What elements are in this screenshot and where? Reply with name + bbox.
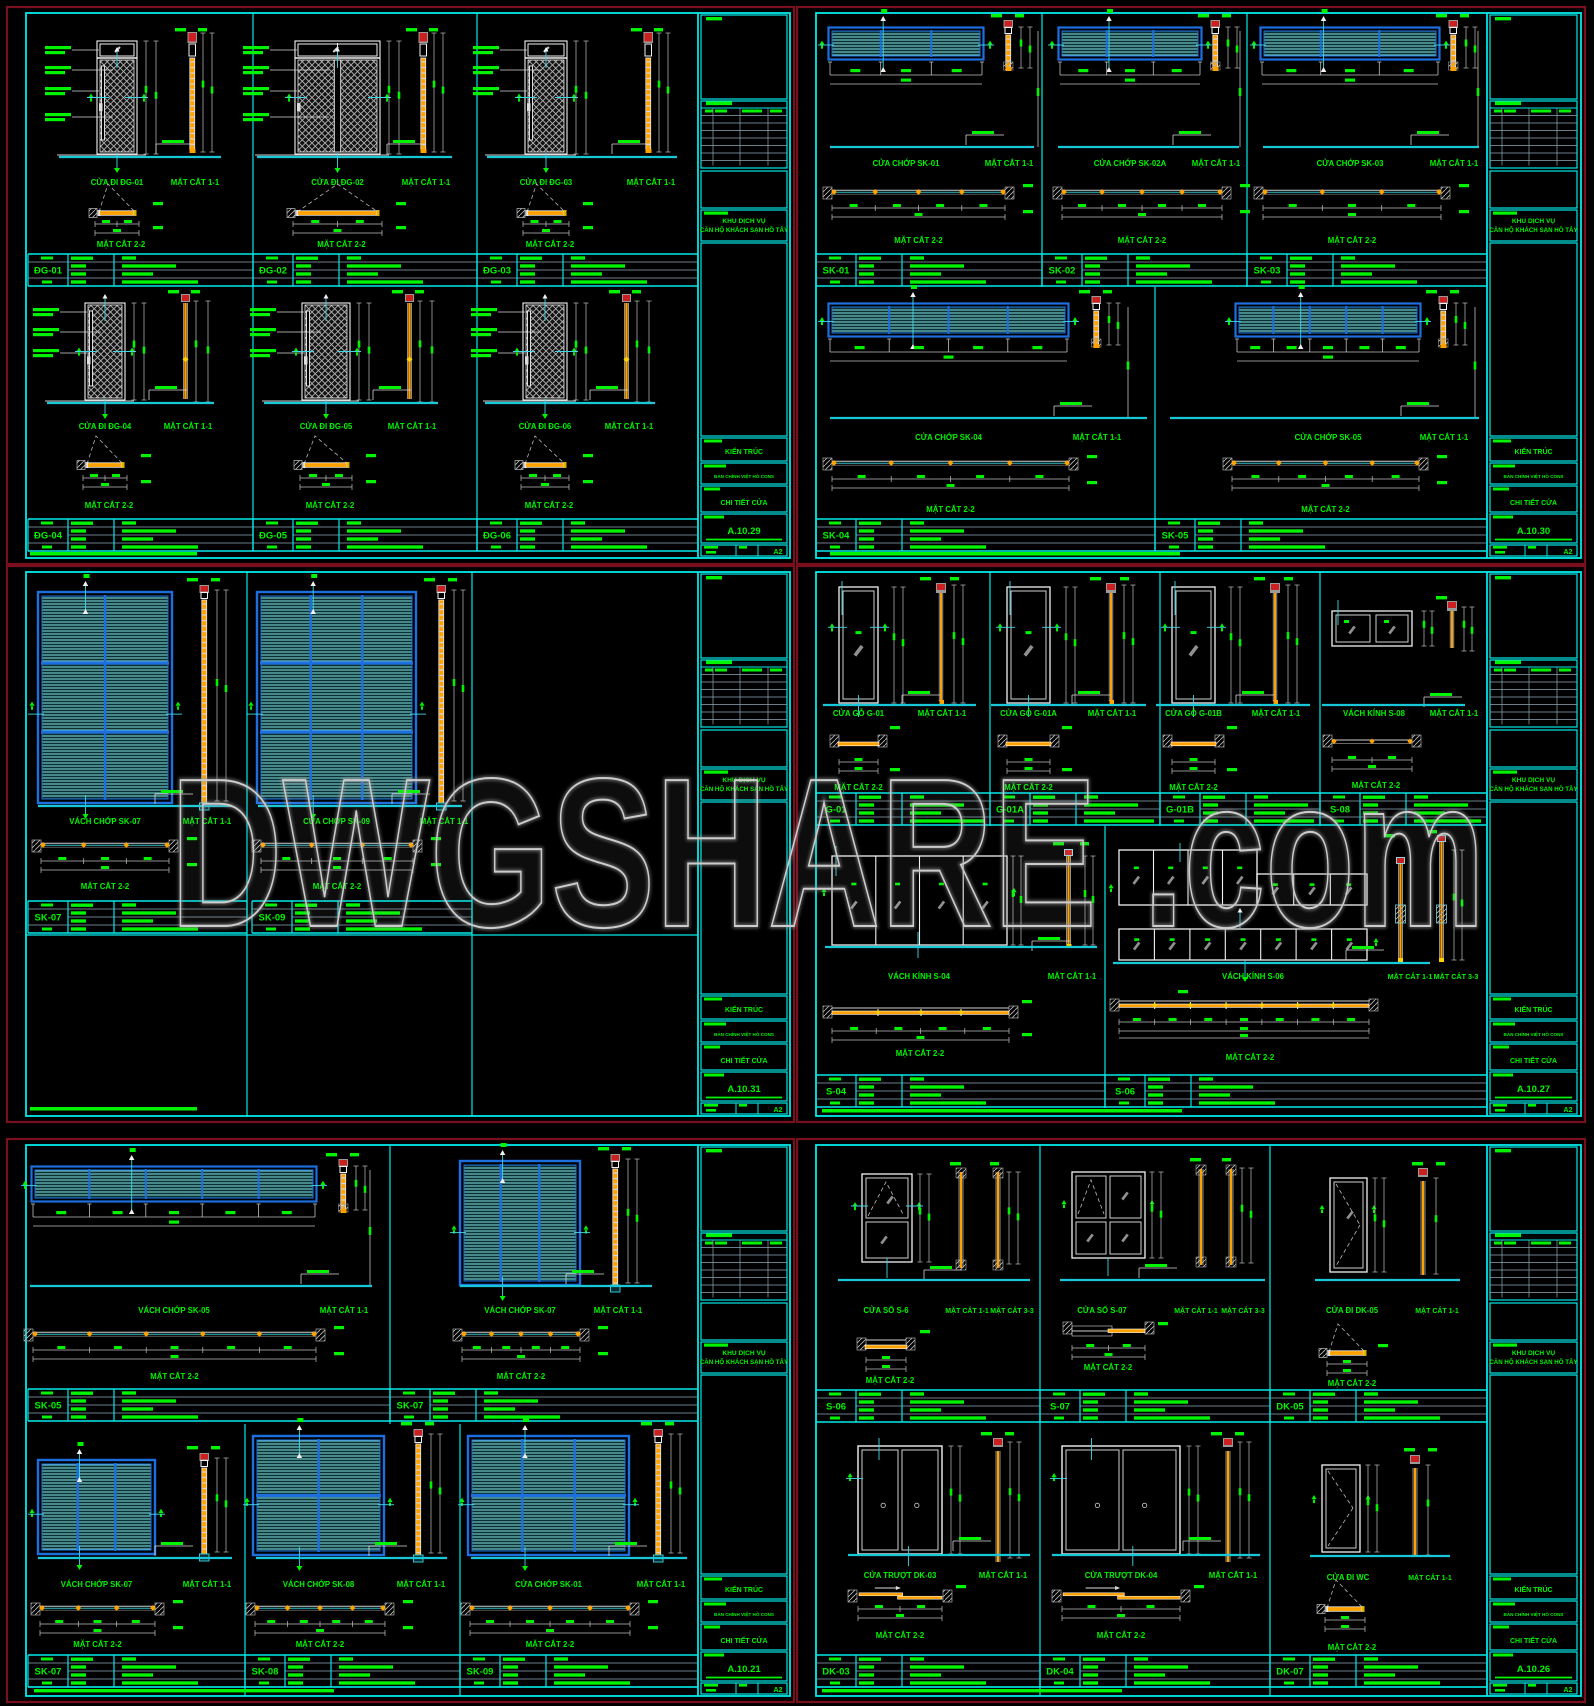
- svg-text:MẶT CẮT 3-3: MẶT CẮT 3-3: [990, 1306, 1034, 1315]
- svg-text:A.10.26: A.10.26: [1517, 1664, 1550, 1675]
- svg-text:A.10.27: A.10.27: [1517, 1084, 1550, 1095]
- svg-text:CĂN HỘ KHÁCH SẠN HỒ TÂY: CĂN HỘ KHÁCH SẠN HỒ TÂY: [1489, 226, 1578, 234]
- svg-text:CỬA ĐI WC: CỬA ĐI WC: [1327, 1573, 1370, 1582]
- svg-text:BẢN CHÍNH VIỆT HỒ CONS: BẢN CHÍNH VIỆT HỒ CONS: [1504, 472, 1564, 479]
- svg-text:MẶT CẮT 1-1: MẶT CẮT 1-1: [1430, 709, 1479, 718]
- svg-text:VÁCH KÍNH S-08: VÁCH KÍNH S-08: [1343, 709, 1406, 718]
- svg-text:DK-05: DK-05: [1276, 1401, 1304, 1412]
- svg-text:MẶT CẮT 1-1: MẶT CẮT 1-1: [1209, 1571, 1258, 1580]
- svg-text:MẶT CẮT 1-1: MẶT CẮT 1-1: [402, 178, 451, 187]
- svg-text:A2: A2: [1564, 1107, 1573, 1114]
- svg-text:MẶT CẮT 3-3: MẶT CẮT 3-3: [1434, 972, 1479, 981]
- svg-text:S-06: S-06: [826, 1401, 846, 1412]
- svg-text:ĐG-05: ĐG-05: [259, 530, 288, 541]
- svg-text:SK-08: SK-08: [252, 1666, 279, 1677]
- svg-text:CỬA GỖ G-01: CỬA GỖ G-01: [833, 709, 885, 718]
- svg-text:MẶT CẮT 2-2: MẶT CẮT 2-2: [81, 882, 130, 891]
- svg-text:SK-09: SK-09: [467, 1666, 494, 1677]
- svg-text:MẶT CẮT 2-2: MẶT CẮT 2-2: [85, 501, 134, 510]
- svg-text:MẶT CẮT 2-2: MẶT CẮT 2-2: [1097, 1631, 1146, 1640]
- svg-text:DK-04: DK-04: [1046, 1666, 1074, 1677]
- svg-text:A2: A2: [774, 1107, 783, 1114]
- svg-text:MẶT CẮT 1-1: MẶT CẮT 1-1: [945, 1306, 989, 1315]
- svg-text:A2: A2: [1564, 1687, 1573, 1694]
- svg-text:VÁCH CHỚP SK-07: VÁCH CHỚP SK-07: [484, 1306, 556, 1315]
- svg-text:MẶT CẮT 1-1: MẶT CẮT 1-1: [1408, 1573, 1452, 1582]
- svg-text:KHU DỊCH VỤ: KHU DỊCH VỤ: [722, 1350, 765, 1357]
- svg-text:ĐG-02: ĐG-02: [259, 265, 287, 276]
- svg-text:A.10.31: A.10.31: [727, 1084, 761, 1095]
- svg-text:MẶT CẮT 2-2: MẶT CẮT 2-2: [150, 1372, 199, 1381]
- svg-text:MẶT CẮT 2-2: MẶT CẮT 2-2: [1328, 1379, 1377, 1388]
- svg-text:S-07: S-07: [1050, 1401, 1070, 1412]
- svg-text:CỬA ĐI ĐG-03: CỬA ĐI ĐG-03: [520, 178, 573, 187]
- svg-text:CỬA ĐI DK-05: CỬA ĐI DK-05: [1326, 1306, 1379, 1315]
- svg-text:DK-07: DK-07: [1276, 1666, 1303, 1677]
- svg-text:MẶT CẮT 1-1: MẶT CẮT 1-1: [1088, 709, 1137, 718]
- svg-text:VÁCH CHỚP SK-05: VÁCH CHỚP SK-05: [138, 1306, 210, 1315]
- svg-text:A.10.29: A.10.29: [727, 526, 760, 537]
- svg-text:SK-07: SK-07: [397, 1400, 424, 1411]
- svg-text:CĂN HỘ KHÁCH SẠN HỒ TÂY: CĂN HỘ KHÁCH SẠN HỒ TÂY: [1489, 1358, 1578, 1366]
- svg-text:MẶT CẮT 2-2: MẶT CẮT 2-2: [526, 1640, 575, 1649]
- svg-text:A.10.30: A.10.30: [1517, 526, 1550, 537]
- svg-text:MẶT CẮT 1-1: MẶT CẮT 1-1: [320, 1306, 369, 1315]
- svg-text:MẶT CẮT 2-2: MẶT CẮT 2-2: [1226, 1053, 1275, 1062]
- svg-text:VÁCH CHỚP SK-08: VÁCH CHỚP SK-08: [283, 1580, 355, 1589]
- svg-text:ĐG-03: ĐG-03: [483, 265, 511, 276]
- svg-text:CỬA CHỚP SK-02A: CỬA CHỚP SK-02A: [1094, 159, 1167, 168]
- svg-text:BẢN CHÍNH VIỆT HỒ CONS: BẢN CHÍNH VIỆT HỒ CONS: [1504, 1030, 1564, 1037]
- svg-text:S-06: S-06: [1115, 1086, 1135, 1097]
- svg-text:BẢN CHÍNH VIỆT HỒ CONS: BẢN CHÍNH VIỆT HỒ CONS: [714, 1030, 774, 1037]
- svg-text:BẢN CHÍNH VIỆT HỒ CONS: BẢN CHÍNH VIỆT HỒ CONS: [1504, 1610, 1564, 1617]
- svg-text:BẢN CHÍNH VIỆT HỒ CONS: BẢN CHÍNH VIỆT HỒ CONS: [714, 1610, 774, 1617]
- svg-text:CĂN HỘ KHÁCH SẠN HỒ TÂY: CĂN HỘ KHÁCH SẠN HỒ TÂY: [700, 226, 789, 234]
- svg-text:MẶT CẮT 2-2: MẶT CẮT 2-2: [497, 1372, 546, 1381]
- svg-text:MẶT CẮT 2-2: MẶT CẮT 2-2: [73, 1640, 122, 1649]
- svg-text:MẶT CẮT 2-2: MẶT CẮT 2-2: [1328, 236, 1377, 245]
- svg-text:CỬA TRƯỢT DK-03: CỬA TRƯỢT DK-03: [864, 1571, 937, 1580]
- svg-text:MẶT CẮT 2-2: MẶT CẮT 2-2: [1118, 236, 1167, 245]
- svg-text:CĂN HỘ KHÁCH SẠN HỒ TÂY: CĂN HỘ KHÁCH SẠN HỒ TÂY: [1489, 785, 1578, 793]
- svg-text:MẶT CẮT 1-1: MẶT CẮT 1-1: [1073, 433, 1122, 442]
- svg-text:SK-07: SK-07: [35, 1666, 62, 1677]
- svg-text:MẶT CẮT 2-2: MẶT CẮT 2-2: [1328, 1643, 1377, 1652]
- svg-text:CỬA ĐI ĐG-02: CỬA ĐI ĐG-02: [311, 178, 364, 187]
- svg-text:MẶT CẮT 1-1: MẶT CẮT 1-1: [985, 159, 1034, 168]
- svg-text:MẶT CẮT 2-2: MẶT CẮT 2-2: [306, 501, 355, 510]
- svg-text:CỬA GỖ G-01A: CỬA GỖ G-01A: [1000, 709, 1057, 718]
- svg-text:SK-05: SK-05: [35, 1400, 63, 1411]
- svg-text:CỬA ĐI ĐG-06: CỬA ĐI ĐG-06: [519, 422, 572, 431]
- svg-text:MẶT CẮT 2-2: MẶT CẮT 2-2: [896, 1049, 945, 1058]
- svg-text:MẶT CẮT 1-1: MẶT CẮT 1-1: [605, 422, 654, 431]
- svg-text:SK-02: SK-02: [1049, 265, 1076, 276]
- svg-text:SK-03: SK-03: [1254, 265, 1281, 276]
- svg-text:ĐG-01: ĐG-01: [34, 265, 63, 276]
- svg-text:CỬA CHỚP SK-01: CỬA CHỚP SK-01: [515, 1580, 583, 1589]
- svg-text:MẶT CẮT 2-2: MẶT CẮT 2-2: [97, 240, 146, 249]
- svg-text:MẶT CẮT 1-1: MẶT CẮT 1-1: [183, 1580, 232, 1589]
- svg-text:CỬA SỔ S-6: CỬA SỔ S-6: [863, 1306, 909, 1315]
- svg-text:MẶT CẮT 2-2: MẶT CẮT 2-2: [894, 236, 943, 245]
- svg-text:VÁCH KÍNH S-06: VÁCH KÍNH S-06: [1222, 972, 1285, 981]
- svg-text:A2: A2: [774, 1687, 783, 1694]
- svg-text:VÁCH KÍNH S-04: VÁCH KÍNH S-04: [888, 972, 951, 981]
- svg-text:MẶT CẮT 1-1: MẶT CẮT 1-1: [1174, 1306, 1218, 1315]
- svg-text:MẶT CẮT 1-1: MẶT CẮT 1-1: [171, 178, 220, 187]
- svg-text:CỬA GỖ G-01B: CỬA GỖ G-01B: [1165, 709, 1222, 718]
- svg-text:MẶT CẮT 1-1: MẶT CẮT 1-1: [979, 1571, 1028, 1580]
- svg-text:CỬA CHỚP SK-04: CỬA CHỚP SK-04: [915, 433, 983, 442]
- svg-text:BẢN CHÍNH VIỆT HỒ CONS: BẢN CHÍNH VIỆT HỒ CONS: [714, 472, 774, 479]
- svg-text:KHU DỊCH VỤ: KHU DỊCH VỤ: [1512, 777, 1555, 784]
- svg-text:MẶT CẮT 1-1: MẶT CẮT 1-1: [1388, 972, 1433, 981]
- svg-text:CỬA TRƯỢT DK-04: CỬA TRƯỢT DK-04: [1085, 1571, 1158, 1580]
- svg-text:MẶT CẮT 2-2: MẶT CẮT 2-2: [876, 1631, 925, 1640]
- svg-text:MẶT CẮT 3-3: MẶT CẮT 3-3: [1221, 1306, 1265, 1315]
- svg-text:MẶT CẮT 1-1: MẶT CẮT 1-1: [627, 178, 676, 187]
- svg-text:S-04: S-04: [826, 1086, 847, 1097]
- svg-text:ĐG-04: ĐG-04: [34, 530, 63, 541]
- svg-text:MẶT CẮT 2-2: MẶT CẮT 2-2: [296, 1640, 345, 1649]
- svg-text:MẶT CẮT 1-1: MẶT CẮT 1-1: [1048, 972, 1097, 981]
- svg-text:VÁCH CHỚP SK-07: VÁCH CHỚP SK-07: [69, 817, 141, 826]
- svg-text:MẶT CẮT 1-1: MẶT CẮT 1-1: [1430, 159, 1479, 168]
- svg-text:CỬA ĐI ĐG-05: CỬA ĐI ĐG-05: [300, 422, 353, 431]
- svg-text:MẶT CẮT 1-1: MẶT CẮT 1-1: [164, 422, 213, 431]
- svg-text:MẶT CẮT 1-1: MẶT CẮT 1-1: [1415, 1306, 1459, 1315]
- svg-text:VÁCH CHỚP SK-07: VÁCH CHỚP SK-07: [61, 1580, 133, 1589]
- svg-text:A2: A2: [774, 549, 783, 556]
- svg-text:SK-07: SK-07: [35, 912, 62, 923]
- svg-text:MẶT CẮT 2-2: MẶT CẮT 2-2: [525, 501, 574, 510]
- svg-text:CỬA CHỚP SK-01: CỬA CHỚP SK-01: [873, 159, 941, 168]
- svg-text:KHU DỊCH VỤ: KHU DỊCH VỤ: [1512, 1350, 1555, 1357]
- svg-text:MẶT CẮT 1-1: MẶT CẮT 1-1: [1192, 159, 1241, 168]
- svg-text:MẶT CẮT 1-1: MẶT CẮT 1-1: [388, 422, 437, 431]
- svg-text:CỬA SỔ S-07: CỬA SỔ S-07: [1077, 1306, 1127, 1315]
- svg-text:MẶT CẮT 1-1: MẶT CẮT 1-1: [1252, 709, 1301, 718]
- svg-text:CỬA CHỚP SK-05: CỬA CHỚP SK-05: [1295, 433, 1363, 442]
- svg-text:MẶT CẮT 1-1: MẶT CẮT 1-1: [594, 1306, 643, 1315]
- svg-text:MẶT CẮT 1-1: MẶT CẮT 1-1: [1420, 433, 1469, 442]
- svg-text:MẶT CẮT 2-2: MẶT CẮT 2-2: [866, 1376, 915, 1385]
- svg-text:MẶT CẮT 2-2: MẶT CẮT 2-2: [526, 240, 575, 249]
- svg-text:CỬA ĐI ĐG-04: CỬA ĐI ĐG-04: [79, 422, 132, 431]
- svg-text:DWGSHARE: DWGSHARE: [170, 734, 1097, 971]
- svg-text:MẶT CẮT 1-1: MẶT CẮT 1-1: [397, 1580, 446, 1589]
- svg-text:SK-04: SK-04: [823, 530, 851, 541]
- svg-text:MẶT CẮT 2-2: MẶT CẮT 2-2: [317, 240, 366, 249]
- svg-text:SK-01: SK-01: [823, 265, 851, 276]
- svg-text:DK-03: DK-03: [822, 1666, 849, 1677]
- svg-text:MẶT CẮT 1-1: MẶT CẮT 1-1: [918, 709, 967, 718]
- svg-text:MẶT CẮT 2-2: MẶT CẮT 2-2: [926, 505, 975, 514]
- svg-text:A2: A2: [1564, 549, 1573, 556]
- svg-text:KHU DỊCH VỤ: KHU DỊCH VỤ: [722, 218, 765, 225]
- svg-text:A.10.21: A.10.21: [727, 1664, 761, 1675]
- svg-text:KHU DỊCH VỤ: KHU DỊCH VỤ: [1512, 218, 1555, 225]
- svg-text:MẶT CẮT 2-2: MẶT CẮT 2-2: [1084, 1363, 1133, 1372]
- svg-text:CỬA ĐI ĐG-01: CỬA ĐI ĐG-01: [91, 178, 144, 187]
- svg-text:CĂN HỘ KHÁCH SẠN HỒ TÂY: CĂN HỘ KHÁCH SẠN HỒ TÂY: [700, 1358, 789, 1366]
- svg-text:SK-05: SK-05: [1162, 530, 1190, 541]
- svg-text:CỬA CHỚP SK-03: CỬA CHỚP SK-03: [1317, 159, 1385, 168]
- svg-text:.com: .com: [1143, 734, 1485, 971]
- svg-text:MẶT CẮT 1-1: MẶT CẮT 1-1: [637, 1580, 686, 1589]
- svg-text:ĐG-06: ĐG-06: [483, 530, 511, 541]
- svg-text:MẶT CẮT 2-2: MẶT CẮT 2-2: [1301, 505, 1350, 514]
